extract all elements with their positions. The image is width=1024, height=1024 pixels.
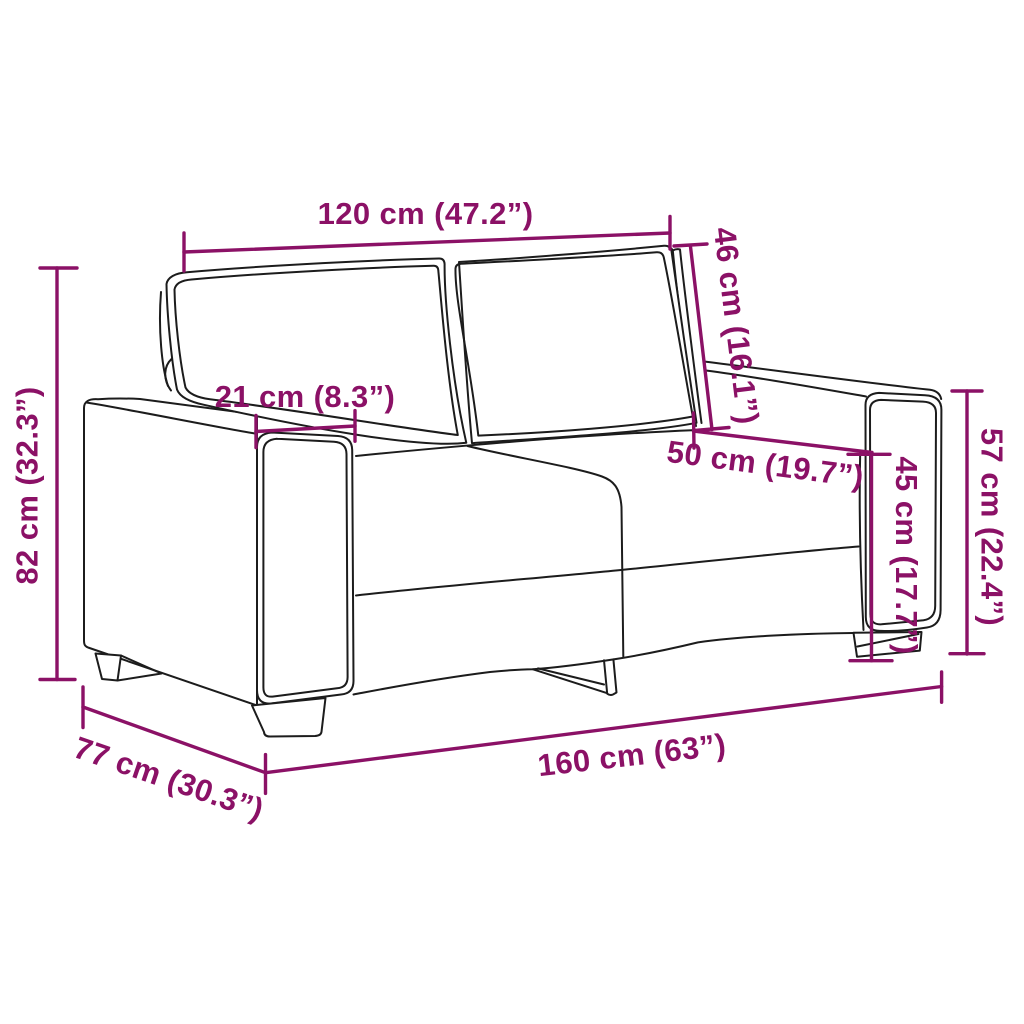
svg-text:50 cm (19.7”): 50 cm (19.7”) [665, 434, 866, 495]
svg-text:77 cm (30.3”): 77 cm (30.3”) [70, 730, 269, 828]
svg-text:21 cm (8.3”): 21 cm (8.3”) [215, 379, 396, 414]
svg-text:120 cm (47.2”): 120 cm (47.2”) [318, 196, 534, 231]
svg-text:46 cm (16.1”): 46 cm (16.1”) [707, 225, 766, 426]
svg-text:82 cm (32.3”): 82 cm (32.3”) [10, 386, 45, 584]
svg-text:45 cm (17.7”): 45 cm (17.7”) [889, 456, 924, 654]
svg-text:57 cm (22.4”): 57 cm (22.4”) [975, 428, 1010, 626]
